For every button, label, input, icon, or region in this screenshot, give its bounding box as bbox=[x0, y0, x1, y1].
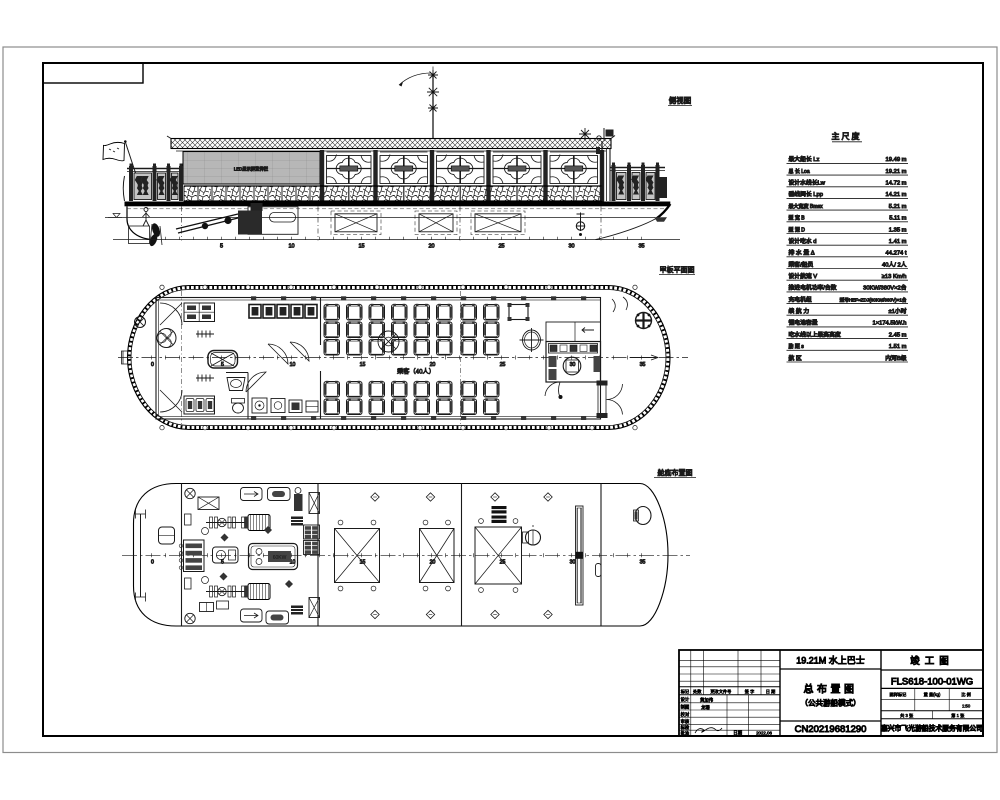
svg-text:设计: 设计 bbox=[681, 696, 690, 703]
svg-text:设计水线长Lw: 设计水线长Lw bbox=[789, 179, 826, 187]
svg-text:标记: 标记 bbox=[681, 688, 690, 695]
svg-text:30: 30 bbox=[568, 243, 574, 249]
svg-text:推进电机功率/台数: 推进电机功率/台数 bbox=[789, 284, 837, 292]
svg-text:处数: 处数 bbox=[693, 688, 702, 695]
svg-text:1×174.5kW.h: 1×174.5kW.h bbox=[873, 321, 907, 327]
svg-text:2.45 m: 2.45 m bbox=[889, 332, 907, 338]
svg-text:舱底布置图: 舱底布置图 bbox=[658, 468, 693, 477]
svg-text:40人/ 2人: 40人/ 2人 bbox=[882, 261, 907, 268]
svg-text:（公共游船模式）: （公共游船模式） bbox=[801, 698, 861, 708]
svg-text:总布置图: 总布置图 bbox=[804, 683, 858, 696]
svg-text:15: 15 bbox=[358, 243, 364, 249]
svg-text:嘉兴市飞光游船技术服务有限公司: 嘉兴市飞光游船技术服务有限公司 bbox=[881, 724, 983, 733]
svg-text:设计吃水 d: 设计吃水 d bbox=[789, 237, 817, 245]
svg-text:35: 35 bbox=[640, 560, 646, 566]
svg-text:最大宽度 Bmax: 最大宽度 Bmax bbox=[789, 203, 824, 210]
svg-text:30KW/380V×2台: 30KW/380V×2台 bbox=[863, 284, 907, 292]
svg-text:型号HEF=ZDJ(60KW/380V)×1台: 型号HEF=ZDJ(60KW/380V)×1台 bbox=[840, 296, 907, 303]
svg-text:30: 30 bbox=[570, 560, 576, 566]
svg-text:±1小时: ±1小时 bbox=[889, 307, 907, 315]
svg-text:型 宽 B: 型 宽 B bbox=[789, 215, 806, 222]
svg-text:航 区: 航 区 bbox=[789, 354, 802, 362]
svg-text:1.35 m: 1.35 m bbox=[889, 227, 907, 233]
svg-text:锂电池容量: 锂电池容量 bbox=[789, 319, 818, 327]
svg-text:竣工图: 竣工图 bbox=[910, 655, 954, 667]
svg-text:44.274 t: 44.274 t bbox=[886, 251, 907, 257]
svg-text:0: 0 bbox=[151, 362, 154, 368]
svg-text:1.51 m: 1.51 m bbox=[889, 344, 907, 350]
svg-text:标检: 标检 bbox=[681, 724, 690, 731]
svg-text:1:50: 1:50 bbox=[962, 704, 971, 709]
svg-text:35: 35 bbox=[640, 362, 646, 368]
svg-text:0: 0 bbox=[151, 560, 154, 566]
svg-text:19.21 m: 19.21 m bbox=[886, 169, 907, 175]
svg-text:比 例: 比 例 bbox=[961, 691, 971, 698]
svg-text:审核: 审核 bbox=[681, 718, 690, 725]
svg-text:校对: 校对 bbox=[681, 711, 690, 718]
svg-text:20: 20 bbox=[428, 243, 434, 249]
svg-text:15: 15 bbox=[360, 362, 366, 368]
svg-text:20: 20 bbox=[430, 362, 436, 368]
svg-text:2022.06: 2022.06 bbox=[756, 731, 772, 736]
svg-text:共 3 张: 共 3 张 bbox=[900, 712, 914, 719]
svg-text:乘客/船员: 乘客/船员 bbox=[789, 260, 814, 268]
svg-text:FLS618-100-01WG: FLS618-100-01WG bbox=[891, 677, 973, 688]
svg-text:制图: 制图 bbox=[681, 704, 690, 711]
svg-text:主尺度: 主尺度 bbox=[832, 131, 862, 141]
svg-text:甲板平面图: 甲板平面图 bbox=[660, 265, 695, 274]
svg-text:10: 10 bbox=[288, 243, 294, 249]
svg-text:14.72 m: 14.72 m bbox=[886, 181, 907, 187]
svg-text:签 字: 签 字 bbox=[745, 688, 755, 694]
svg-text:CN20219681290: CN20219681290 bbox=[795, 724, 867, 735]
svg-text:19.49 m: 19.49 m bbox=[886, 157, 907, 163]
svg-text:总 长 Loa: 总 长 Loa bbox=[789, 168, 810, 175]
svg-text:1.41 m: 1.41 m bbox=[889, 239, 907, 245]
svg-text:排 水 量 Δ: 排 水 量 Δ bbox=[789, 249, 815, 257]
svg-text:35: 35 bbox=[638, 243, 644, 249]
svg-text:5: 5 bbox=[220, 243, 223, 249]
svg-text:型 深 D: 型 深 D bbox=[789, 226, 806, 233]
svg-text:重 量(kg): 重 量(kg) bbox=[924, 691, 941, 698]
svg-text:设计航速 V: 设计航速 V bbox=[789, 272, 818, 280]
svg-text:5.11 m: 5.11 m bbox=[889, 216, 906, 222]
svg-text:续 航 力: 续 航 力 bbox=[789, 307, 810, 315]
svg-text:5.21 m: 5.21 m bbox=[889, 204, 907, 210]
svg-text:充电机组: 充电机组 bbox=[789, 295, 812, 303]
svg-text:LED显示屏宣传栏: LED显示屏宣传栏 bbox=[234, 166, 269, 173]
svg-text:最大船长 Lz: 最大船长 Lz bbox=[789, 155, 820, 163]
svg-text:30: 30 bbox=[570, 362, 576, 368]
svg-text:图样标记: 图样标记 bbox=[890, 691, 908, 698]
svg-text:14.21 m: 14.21 m bbox=[886, 192, 907, 198]
svg-text:黄加伟: 黄加伟 bbox=[700, 697, 714, 704]
svg-text:吃水线以上最高高度: 吃水线以上最高高度 bbox=[789, 330, 841, 338]
svg-text:龙珊: 龙珊 bbox=[701, 704, 710, 711]
svg-text:侧视图: 侧视图 bbox=[669, 95, 692, 105]
svg-text:25: 25 bbox=[500, 362, 506, 368]
svg-text:19.21M 水上巴士: 19.21M 水上巴士 bbox=[796, 655, 865, 666]
svg-text:≥13 Km/h: ≥13 Km/h bbox=[882, 274, 907, 280]
svg-text:60KW: 60KW bbox=[273, 555, 287, 561]
svg-text:垂线间长 Lpp: 垂线间长 Lpp bbox=[789, 190, 823, 198]
svg-text:批准: 批准 bbox=[681, 730, 690, 737]
svg-text:肋 距 s: 肋 距 s bbox=[789, 343, 805, 350]
svg-text:内河B级: 内河B级 bbox=[885, 354, 906, 362]
svg-text:第 1 张: 第 1 张 bbox=[951, 712, 965, 719]
svg-text:5: 5 bbox=[221, 362, 224, 368]
svg-text:乘客（40人）: 乘客（40人） bbox=[397, 368, 435, 376]
svg-text:10: 10 bbox=[290, 362, 296, 368]
svg-text:更改文件号: 更改文件号 bbox=[710, 688, 731, 695]
svg-text:25: 25 bbox=[498, 243, 504, 249]
